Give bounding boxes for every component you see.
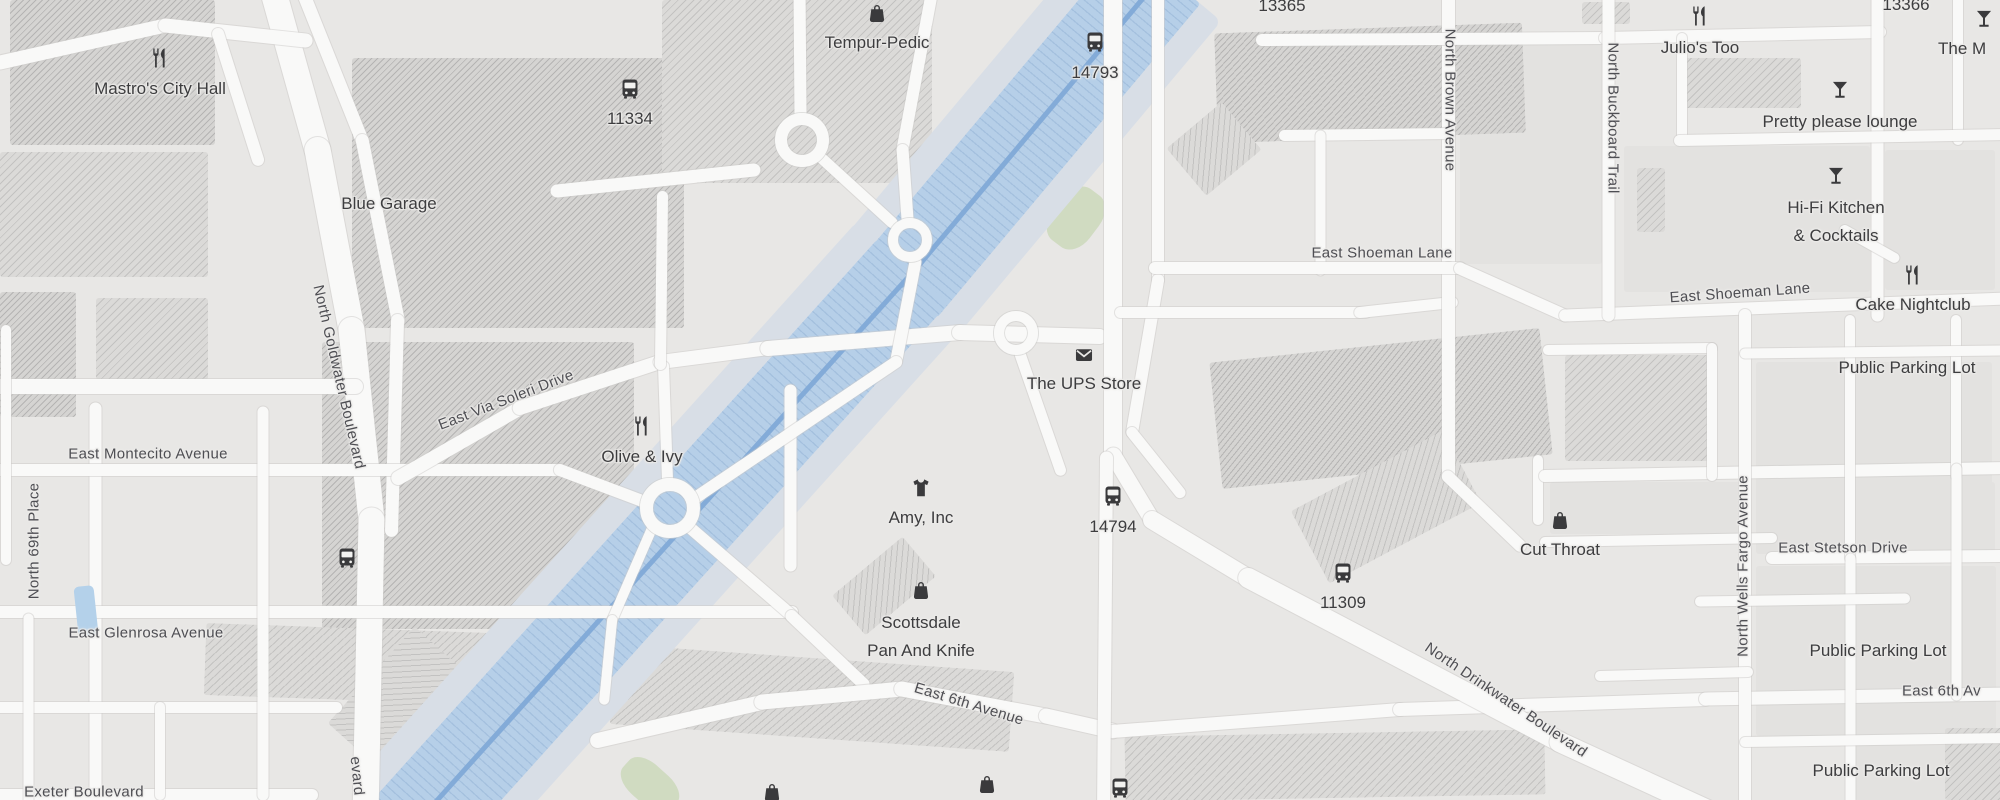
street-label-north-brown-avenue: North Brown Avenue: [1442, 29, 1459, 172]
bus-icon: [619, 78, 641, 100]
cocktail-icon: [1973, 8, 1995, 30]
road: [1125, 273, 1165, 439]
road: [655, 190, 668, 369]
road: [1149, 262, 1466, 274]
street-label-north-69th-place: North 69th Place: [26, 483, 43, 600]
road: [23, 613, 33, 800]
road: [1707, 343, 1717, 481]
bus-icon: [336, 547, 358, 569]
road: [1543, 343, 1717, 355]
road: [0, 606, 798, 618]
street-label-exeter-boulevard: Exeter Boulevard: [24, 784, 144, 800]
shopping-bag-icon: [761, 781, 783, 800]
poi-label: Public Parking Lot: [1809, 637, 1946, 665]
poi-label: ScottsdalePan And Knife: [867, 609, 975, 665]
poi-label: Cut Throat: [1520, 536, 1600, 564]
poi-label: Public Parking Lot: [1838, 354, 1975, 382]
restaurant-icon: [1689, 5, 1711, 27]
street-label-north-wells-fargo-avenue: North Wells Fargo Avenue: [1735, 475, 1752, 657]
road: [784, 384, 796, 571]
cocktail-icon: [1829, 79, 1851, 101]
road: [258, 407, 269, 800]
bus-icon: [1084, 31, 1106, 53]
building: [96, 298, 208, 380]
cocktail-icon: [1825, 165, 1847, 187]
poi-label: The UPS Store: [1027, 370, 1141, 398]
road: [1599, 26, 1886, 44]
road: [1013, 348, 1067, 477]
road: [1279, 127, 1455, 140]
poi-label: Tempur-Pedic: [825, 29, 930, 57]
road: [1871, 0, 1883, 321]
road: [1256, 32, 1611, 46]
road: [1234, 564, 1573, 755]
road: [1951, 463, 1961, 700]
road: [0, 464, 566, 476]
map-canvas[interactable]: North Goldwater BoulevardevardEast Via S…: [0, 0, 2000, 800]
road: [1152, 0, 1164, 286]
building: [0, 152, 208, 277]
poi-label: Amy, Inc: [889, 504, 954, 532]
bus-stop-number: 13366: [1882, 0, 1929, 19]
roundabout: [888, 218, 932, 262]
poi-label: Blue Garage: [341, 190, 436, 218]
street-label-north-buckboard-trail: North Buckboard Trail: [1605, 42, 1622, 193]
road: [1442, 262, 1455, 483]
street-label-east-montecito-avenue: East Montecito Avenue: [68, 446, 227, 463]
road: [155, 702, 165, 800]
poi-label: Mastro's City Hall: [94, 75, 226, 103]
building: [1683, 58, 1801, 108]
poi-label: The M: [1938, 35, 1986, 63]
street-label-east-shoeman-lane: East Shoeman Lane: [1311, 245, 1452, 262]
road: [0, 379, 363, 394]
bus-stop-number: 11309: [1320, 589, 1366, 617]
bus-stop-number: 11334: [607, 105, 653, 133]
bus-stop-number: 14794: [1089, 513, 1136, 541]
poi-label: Julio's Too: [1661, 34, 1740, 62]
roundabout: [994, 311, 1038, 355]
restaurant-icon: [631, 415, 653, 437]
bus-stop-number: 14793: [1071, 59, 1118, 87]
street-label-east-glenrosa-avenue: East Glenrosa Avenue: [69, 625, 224, 642]
road: [1115, 307, 1371, 318]
restaurant-icon: [1902, 264, 1924, 286]
city-block: [1550, 482, 1746, 534]
street-label-east-6th-av: East 6th Av: [1902, 683, 1981, 700]
restaurant-icon: [149, 47, 171, 69]
poi-label: Pretty please lounge: [1763, 108, 1918, 136]
poi-label: Olive & Ivy: [601, 443, 682, 471]
building: [0, 292, 76, 417]
poi-label: Cake Nightclub: [1855, 291, 1970, 319]
road: [0, 702, 342, 713]
shopping-bag-icon: [1549, 509, 1571, 531]
road: [1, 325, 11, 565]
building: [1565, 355, 1715, 461]
bus-stop-number: 13365: [1258, 0, 1305, 20]
building: [1637, 168, 1665, 232]
poi-label: Public Parking Lot: [1812, 757, 1949, 785]
bus-icon: [1102, 485, 1124, 507]
road: [794, 0, 807, 120]
road: [1951, 315, 1961, 481]
bus-icon: [1332, 562, 1354, 584]
road: [1953, 0, 1963, 145]
clothing-icon: [910, 477, 932, 499]
roundabout: [775, 113, 829, 167]
road: [1533, 455, 1543, 525]
shopping-bag-icon: [910, 579, 932, 601]
road: [1595, 667, 1753, 681]
park-green-area: [614, 749, 687, 800]
street-label-east-stetson-drive: East Stetson Drive: [1778, 540, 1908, 557]
poi-label: Hi-Fi Kitchen& Cocktails: [1787, 194, 1884, 250]
shopping-bag-icon: [976, 773, 998, 795]
building: [1124, 729, 1545, 800]
bus-icon: [1109, 777, 1131, 799]
road: [1452, 260, 1573, 323]
shopping-bag-icon: [866, 2, 888, 24]
mail-icon: [1073, 344, 1095, 366]
road: [1393, 692, 1712, 715]
roundabout: [640, 478, 700, 538]
